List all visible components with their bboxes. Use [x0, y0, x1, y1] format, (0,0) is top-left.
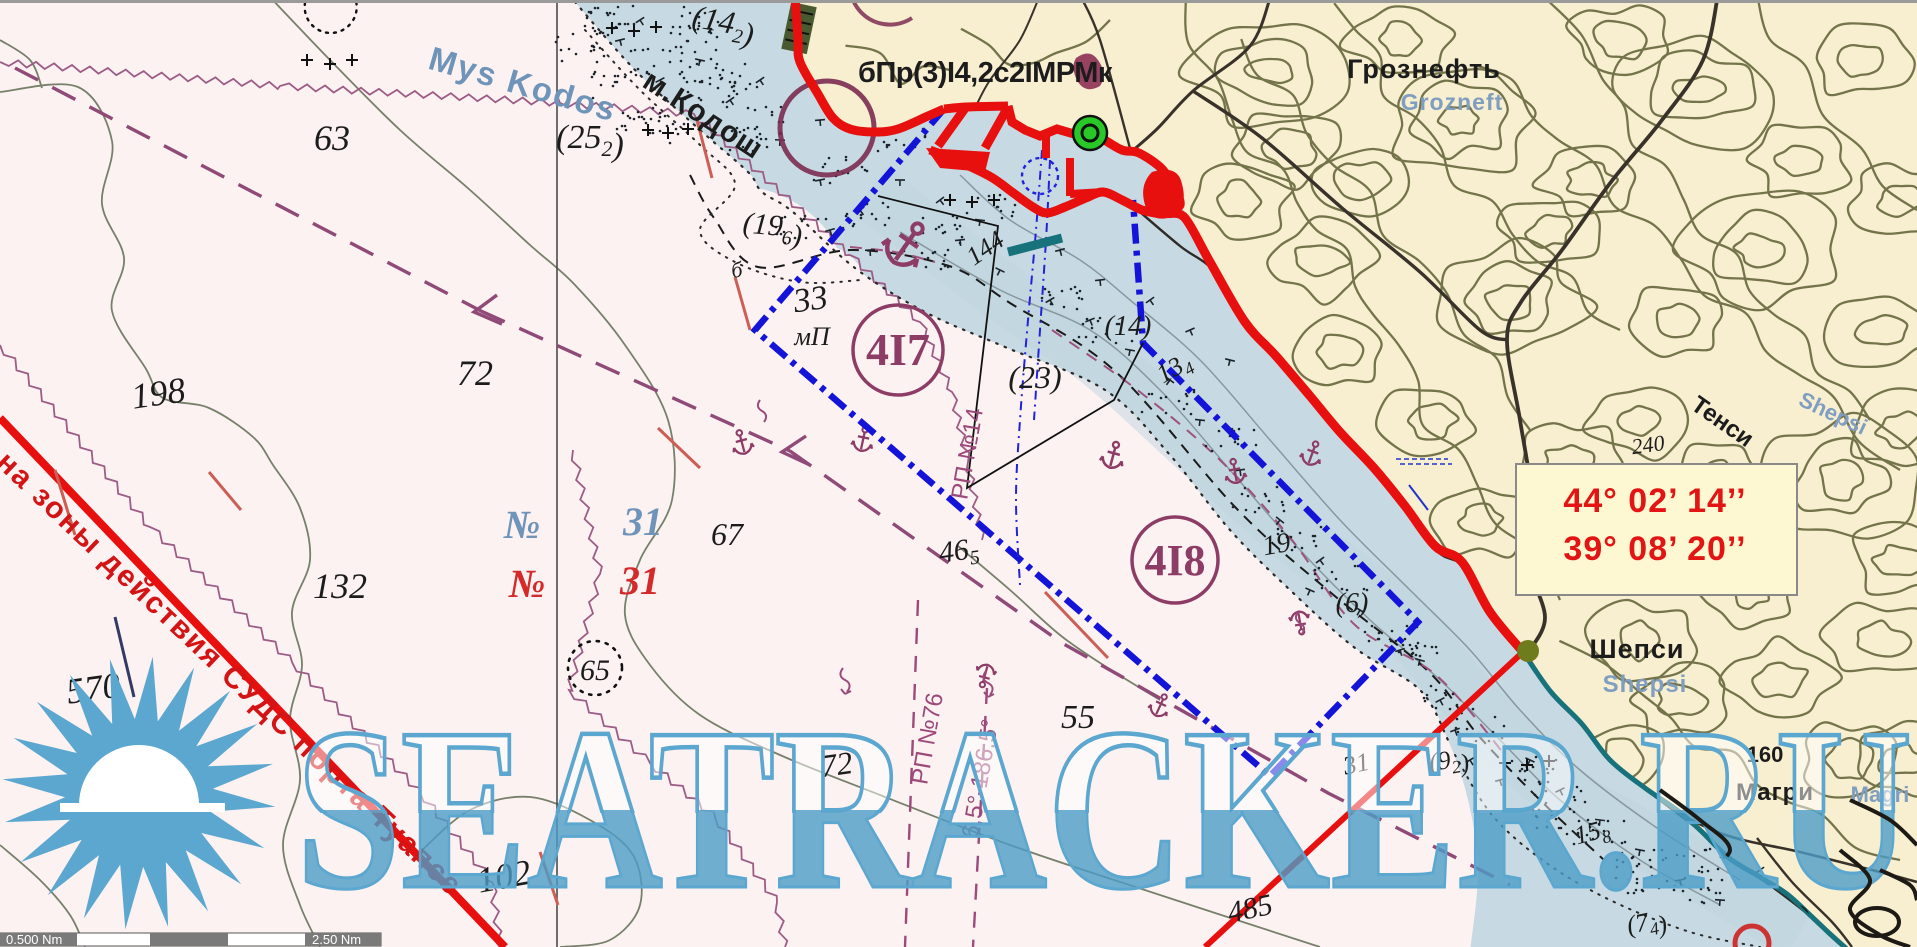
svg-text:39° 08’ 20’’: 39° 08’ 20’’: [1563, 530, 1746, 568]
svg-text:31: 31: [622, 499, 663, 544]
svg-text:(23): (23): [1008, 359, 1061, 395]
svg-text:4I8: 4I8: [1144, 536, 1205, 585]
svg-text:(6): (6): [1336, 588, 1369, 619]
svg-text:№: №: [508, 561, 546, 606]
svg-text:4I7: 4I7: [866, 324, 930, 375]
svg-text:198: 198: [129, 370, 188, 417]
svg-text:№: №: [503, 502, 541, 547]
svg-text:44° 02’ 14’’: 44° 02’ 14’’: [1563, 482, 1746, 520]
svg-text:Grozneft: Grozneft: [1401, 89, 1504, 115]
svg-text:19: 19: [1260, 527, 1293, 562]
svg-text:132: 132: [313, 566, 367, 606]
svg-text:мП: мП: [793, 322, 832, 351]
svg-text:(14): (14): [1105, 311, 1152, 342]
svg-text:Грознефть: Грознефть: [1347, 54, 1501, 84]
svg-text:33: 33: [790, 279, 830, 321]
svg-text:0.500 Nm: 0.500 Nm: [6, 932, 62, 947]
svg-text:31: 31: [619, 558, 660, 603]
svg-text:67: 67: [711, 516, 745, 552]
svg-text:72: 72: [457, 353, 493, 393]
svg-text:2.50 Nm: 2.50 Nm: [312, 932, 361, 947]
svg-text:бПр(3)I4,2с2IМРМк: бПр(3)I4,2с2IМРМк: [858, 57, 1113, 89]
svg-text:240: 240: [1630, 430, 1666, 459]
svg-text:63: 63: [314, 118, 350, 158]
svg-text:Шепси: Шепси: [1589, 634, 1684, 664]
